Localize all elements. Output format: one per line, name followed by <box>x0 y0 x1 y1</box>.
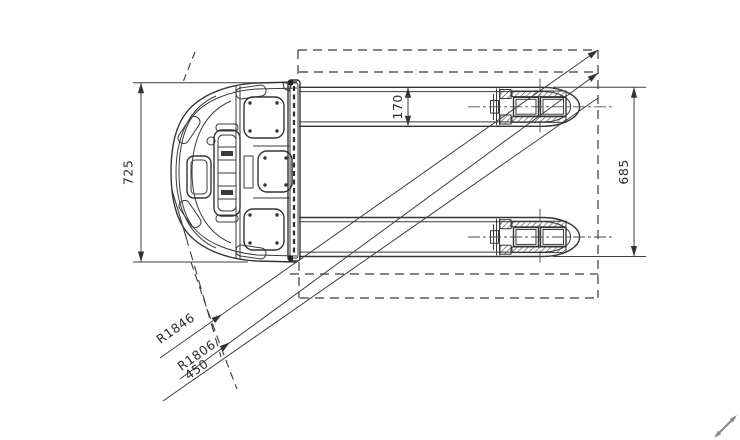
dimension-685: 685 <box>553 87 646 256</box>
label-overall-width: 725 <box>121 160 136 185</box>
steer-line-top-dashed <box>183 52 195 82</box>
steer-line-dashed <box>186 237 221 357</box>
fork-carriage <box>288 80 300 261</box>
panel-slot <box>244 156 253 188</box>
tiller-coupling <box>187 124 240 222</box>
cover-panels <box>244 97 292 250</box>
label-fork-span: 685 <box>616 159 631 184</box>
pallet-truck-top-view-drawing: R1846 R1806 450 <box>0 0 740 440</box>
pallet-truck-drawing-canvas: R1846 R1806 450 <box>0 0 740 440</box>
dimension-170: 170 <box>390 87 411 126</box>
label-turning-radius-outer: R1846 <box>154 310 198 347</box>
label-fork-width: 170 <box>390 94 405 119</box>
drive-unit <box>171 80 300 262</box>
resize-cursor-icon[interactable] <box>712 413 738 439</box>
